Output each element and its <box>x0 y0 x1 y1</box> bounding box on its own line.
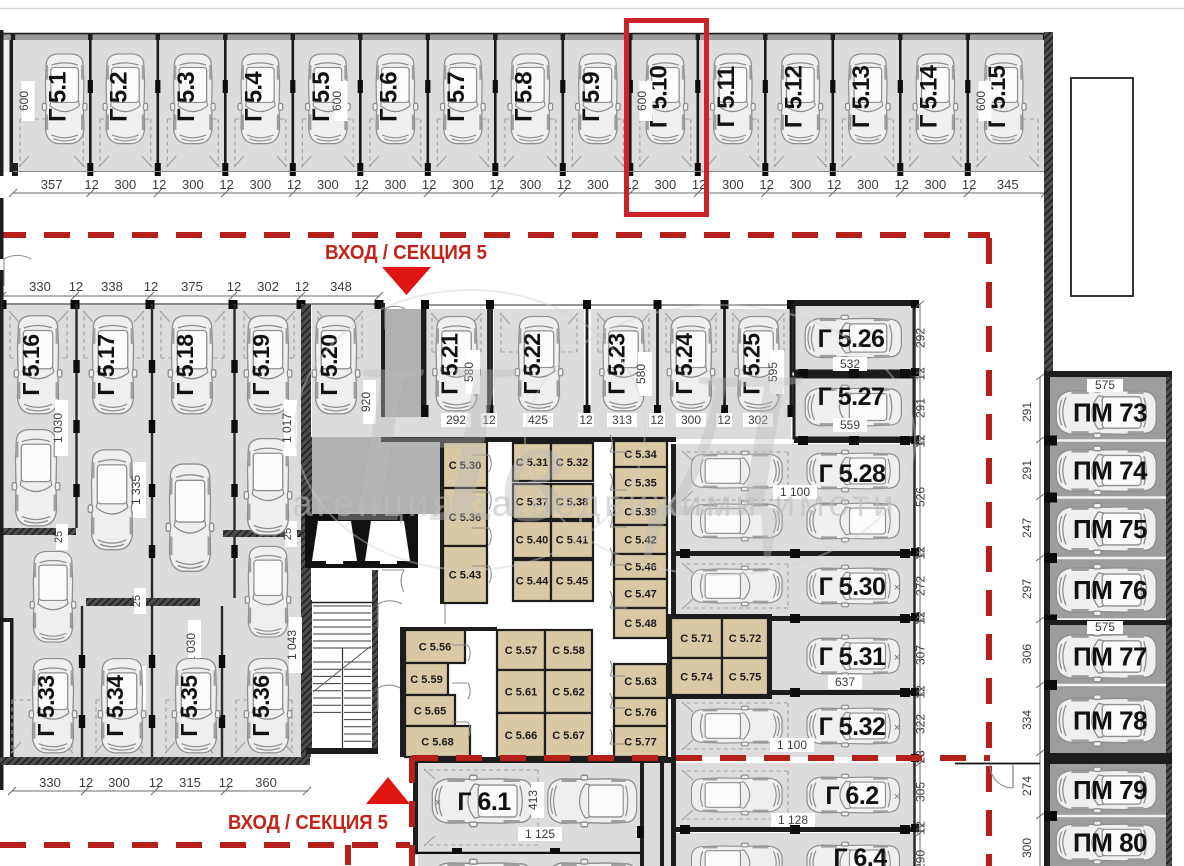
svg-text:ПМ 73: ПМ 73 <box>1073 398 1147 428</box>
svg-text:С 5.71: С 5.71 <box>680 633 712 645</box>
svg-text:12: 12 <box>219 177 233 192</box>
svg-text:С 5.43: С 5.43 <box>449 570 481 582</box>
svg-text:300: 300 <box>789 177 811 192</box>
svg-text:12: 12 <box>295 279 309 294</box>
svg-text:12: 12 <box>287 177 301 192</box>
svg-text:1 125: 1 125 <box>525 827 555 841</box>
svg-text:345: 345 <box>997 177 1019 192</box>
svg-text:С 5.65: С 5.65 <box>414 706 446 718</box>
svg-text:С 5.66: С 5.66 <box>505 730 537 742</box>
svg-text:300: 300 <box>317 177 339 192</box>
svg-text:Г 5.16: Г 5.16 <box>18 334 44 395</box>
svg-text:С 5.62: С 5.62 <box>552 687 584 699</box>
svg-text:12: 12 <box>152 177 166 192</box>
svg-text:Г 6.4: Г 6.4 <box>833 844 887 866</box>
svg-text:532: 532 <box>840 357 860 371</box>
svg-text:С 5.74: С 5.74 <box>680 672 713 684</box>
svg-text:Н: Н <box>337 315 517 570</box>
svg-text:С 5.61: С 5.61 <box>505 687 537 699</box>
svg-text:334: 334 <box>1020 710 1034 730</box>
svg-text:25: 25 <box>131 595 143 607</box>
svg-text:С 5.77: С 5.77 <box>624 737 656 749</box>
svg-text:313: 313 <box>612 413 632 427</box>
svg-text:300: 300 <box>924 177 946 192</box>
svg-text:1 030: 1 030 <box>51 413 65 443</box>
svg-text:306: 306 <box>1020 644 1034 664</box>
svg-text:300: 300 <box>249 177 271 192</box>
svg-text:С 5.48: С 5.48 <box>624 618 656 630</box>
svg-text:12: 12 <box>827 177 841 192</box>
svg-text:Г 5.7: Г 5.7 <box>443 72 470 122</box>
svg-text:12: 12 <box>219 775 233 790</box>
svg-text:Г 5.32: Г 5.32 <box>819 713 886 741</box>
svg-text:1 043: 1 043 <box>285 630 299 660</box>
svg-text:12: 12 <box>84 177 98 192</box>
svg-text:291: 291 <box>1020 402 1034 422</box>
svg-text:ПМ 77: ПМ 77 <box>1073 642 1147 672</box>
svg-text:300: 300 <box>452 177 474 192</box>
svg-text:315: 315 <box>179 775 201 790</box>
svg-text:С 5.72: С 5.72 <box>729 633 761 645</box>
svg-text:575: 575 <box>1095 378 1115 392</box>
svg-text:305: 305 <box>914 782 928 802</box>
svg-text:559: 559 <box>840 418 860 432</box>
svg-text:637: 637 <box>835 675 855 689</box>
svg-text:Г 5.35: Г 5.35 <box>176 675 202 737</box>
svg-text:300: 300 <box>114 177 136 192</box>
svg-text:Г 5.18: Г 5.18 <box>172 334 198 396</box>
svg-text:ВХОД / СЕКЦИЯ 5: ВХОД / СЕКЦИЯ 5 <box>228 811 388 834</box>
svg-text:302: 302 <box>257 279 279 294</box>
svg-text:Г 5.20: Г 5.20 <box>316 334 342 395</box>
svg-text:12: 12 <box>759 177 773 192</box>
svg-text:300: 300 <box>384 177 406 192</box>
svg-text:322: 322 <box>914 714 928 734</box>
svg-text:12: 12 <box>914 821 928 835</box>
svg-text:Г 5.12: Г 5.12 <box>780 65 807 128</box>
svg-text:12: 12 <box>914 367 928 381</box>
svg-text:330: 330 <box>29 279 51 294</box>
svg-text:12: 12 <box>914 546 928 560</box>
svg-text:Г 5.34: Г 5.34 <box>102 675 128 737</box>
svg-text:Г 5.17: Г 5.17 <box>93 334 119 395</box>
svg-text:Г 5.19: Г 5.19 <box>248 334 274 395</box>
svg-text:12: 12 <box>557 177 571 192</box>
svg-text:ПМ 76: ПМ 76 <box>1073 575 1147 605</box>
svg-text:375: 375 <box>181 279 203 294</box>
svg-text:1 017: 1 017 <box>280 413 294 443</box>
svg-text:413: 413 <box>526 790 540 810</box>
svg-text:360: 360 <box>255 775 277 790</box>
svg-text:274: 274 <box>1020 776 1034 796</box>
svg-text:ВХОД / СЕКЦИЯ 5: ВХОД / СЕКЦИЯ 5 <box>325 241 487 264</box>
svg-text:300: 300 <box>108 775 130 790</box>
svg-text:Г 5.2: Г 5.2 <box>105 72 132 122</box>
svg-text:×: × <box>894 791 900 803</box>
svg-text:Г 5.1: Г 5.1 <box>45 72 72 122</box>
svg-text:Г 5.14: Г 5.14 <box>915 64 942 128</box>
svg-text:Г 5.8: Г 5.8 <box>510 72 537 122</box>
svg-text:300: 300 <box>654 177 676 192</box>
svg-text:12: 12 <box>489 177 503 192</box>
svg-text:ПМ 74: ПМ 74 <box>1073 456 1148 486</box>
svg-text:в: в <box>500 387 565 553</box>
svg-text:Г 5.31: Г 5.31 <box>819 643 886 671</box>
svg-text:12: 12 <box>354 177 368 192</box>
svg-text:12: 12 <box>422 177 436 192</box>
svg-text:25: 25 <box>53 531 65 543</box>
svg-text:290: 290 <box>914 850 928 866</box>
svg-text:С 5.47: С 5.47 <box>624 589 656 601</box>
svg-text:300: 300 <box>519 177 541 192</box>
svg-text:600: 600 <box>635 91 649 111</box>
svg-text:12: 12 <box>962 177 976 192</box>
svg-text:С 5.75: С 5.75 <box>729 672 761 684</box>
svg-text:580: 580 <box>634 364 648 384</box>
svg-text:330: 330 <box>39 775 61 790</box>
svg-text:С 5.44: С 5.44 <box>516 576 549 588</box>
svg-text:357: 357 <box>41 177 63 192</box>
svg-text:ПМ 79: ПМ 79 <box>1073 775 1147 805</box>
svg-text:С 5.76: С 5.76 <box>624 707 656 719</box>
svg-text:300: 300 <box>1020 838 1034 858</box>
svg-text:Г 5.11: Г 5.11 <box>713 66 740 127</box>
svg-text:×: × <box>894 582 900 594</box>
svg-text:12: 12 <box>894 177 908 192</box>
svg-text:12: 12 <box>69 279 83 294</box>
svg-text:ПМ 78: ПМ 78 <box>1073 706 1147 736</box>
svg-text:12: 12 <box>227 279 241 294</box>
svg-text:307: 307 <box>914 645 928 665</box>
svg-text:292: 292 <box>914 328 928 348</box>
svg-text:272: 272 <box>914 576 928 596</box>
svg-text:С 5.58: С 5.58 <box>552 645 584 657</box>
svg-text:С 5.42: С 5.42 <box>624 535 656 547</box>
svg-text:С 5.57: С 5.57 <box>505 645 537 657</box>
svg-text:Д: Д <box>643 329 804 561</box>
svg-text:Г 5.3: Г 5.3 <box>173 72 200 122</box>
svg-text:1 128: 1 128 <box>778 813 808 827</box>
svg-text:575: 575 <box>1095 620 1115 634</box>
svg-text:С 5.59: С 5.59 <box>410 674 442 686</box>
svg-text:600: 600 <box>17 91 31 111</box>
svg-text:Г 5.27: Г 5.27 <box>818 383 885 411</box>
svg-text:Г 5.6: Г 5.6 <box>375 72 402 122</box>
svg-text:С 5.45: С 5.45 <box>556 576 588 588</box>
svg-text:ПМ 75: ПМ 75 <box>1073 514 1147 544</box>
svg-text:338: 338 <box>101 279 123 294</box>
svg-text:300: 300 <box>857 177 879 192</box>
svg-text:1 100: 1 100 <box>777 738 807 752</box>
svg-text:12: 12 <box>914 685 928 699</box>
svg-text:Г 5.36: Г 5.36 <box>248 675 274 736</box>
svg-text:С 5.56: С 5.56 <box>419 642 451 654</box>
svg-text:600: 600 <box>330 91 344 111</box>
svg-text:С 5.67: С 5.67 <box>552 730 584 742</box>
svg-text:526: 526 <box>914 487 928 507</box>
svg-text:ПМ 80: ПМ 80 <box>1073 828 1147 858</box>
svg-text:297: 297 <box>1020 579 1034 599</box>
svg-text:С 5.68: С 5.68 <box>421 737 453 749</box>
svg-text:С 5.63: С 5.63 <box>624 676 656 688</box>
svg-text:×: × <box>894 722 900 734</box>
svg-text:Г 5.13: Г 5.13 <box>848 65 875 128</box>
svg-text:300: 300 <box>587 177 609 192</box>
svg-text:348: 348 <box>330 279 352 294</box>
svg-text:Г 5.33: Г 5.33 <box>33 675 59 736</box>
svg-text:1 335: 1 335 <box>129 475 143 505</box>
svg-text:291: 291 <box>1020 460 1034 480</box>
svg-text:291: 291 <box>914 398 928 418</box>
svg-text:агенция за недвижими имоти: агенция за недвижими имоти <box>292 483 898 524</box>
svg-text:Г 5.4: Г 5.4 <box>240 71 267 122</box>
svg-text:600: 600 <box>974 91 988 111</box>
svg-text:Г 6.2: Г 6.2 <box>825 782 878 810</box>
svg-text:×: × <box>435 797 441 809</box>
svg-text:12: 12 <box>144 279 158 294</box>
svg-text:12: 12 <box>149 775 163 790</box>
svg-text:300: 300 <box>182 177 204 192</box>
svg-text:Г 5.9: Г 5.9 <box>578 72 605 122</box>
svg-text:300: 300 <box>722 177 744 192</box>
svg-text:247: 247 <box>1020 518 1034 538</box>
svg-text:12: 12 <box>79 775 93 790</box>
svg-text:12: 12 <box>914 611 928 625</box>
svg-text:Г 6.1: Г 6.1 <box>457 788 511 816</box>
svg-text:×: × <box>894 652 900 664</box>
svg-text:12: 12 <box>579 413 593 427</box>
svg-text:Г 5.30: Г 5.30 <box>819 573 886 601</box>
